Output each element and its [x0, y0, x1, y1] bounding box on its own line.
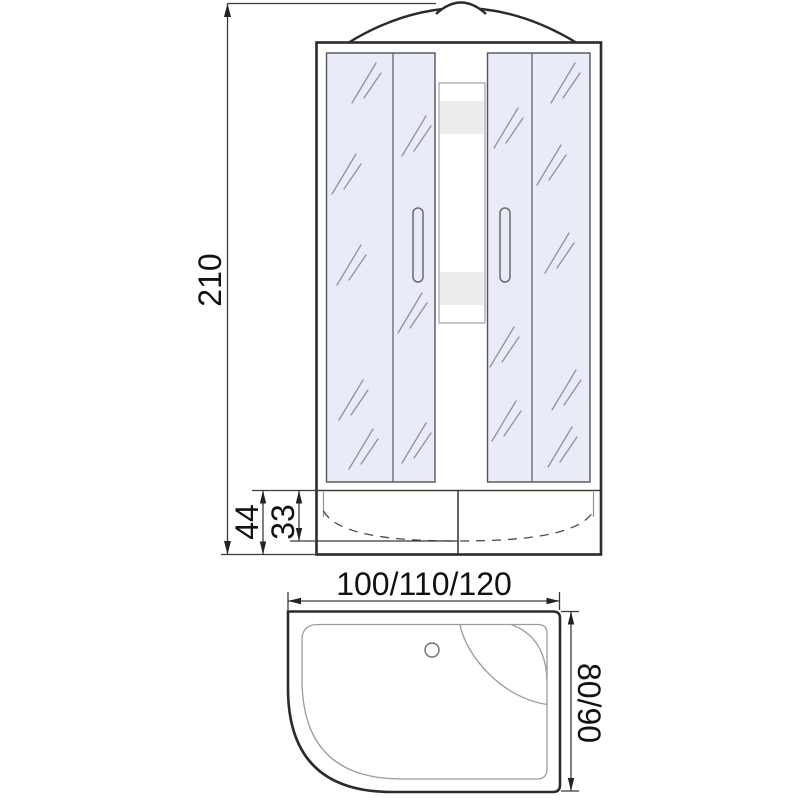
tray-height-dimension-label: 44	[229, 504, 265, 540]
dimension-tray-depth: 80/90	[561, 612, 607, 792]
shelf-band-bottom	[440, 272, 484, 305]
arrowhead-down	[224, 541, 231, 555]
depth-dimension-label: 80/90	[571, 663, 607, 743]
arrowhead-down	[568, 778, 574, 791]
front-view	[317, 3, 602, 555]
top-view	[288, 612, 560, 793]
drain-hole	[425, 643, 439, 657]
arrowhead-up	[224, 4, 231, 18]
dimension-tray-width: 100/110/120	[288, 566, 560, 610]
arrowhead-left	[288, 598, 301, 604]
height-dimension-label: 210	[192, 253, 228, 306]
shelf-band-top	[440, 101, 484, 134]
tray-inner-height-dimension-label: 33	[265, 504, 301, 540]
arrowhead-up	[260, 491, 266, 504]
arrowhead-up	[568, 612, 574, 625]
arrowhead-up	[296, 491, 302, 504]
arrowhead-right	[547, 598, 560, 604]
shower-cabin-dimension-drawing: 210 44 33 100/110/120 80/90	[0, 0, 800, 800]
glass-door-right	[488, 53, 591, 482]
width-dimension-label: 100/110/120	[336, 566, 512, 602]
arrowhead-down	[260, 542, 266, 555]
tray-outline	[288, 612, 560, 793]
glass-door-left	[327, 53, 436, 482]
